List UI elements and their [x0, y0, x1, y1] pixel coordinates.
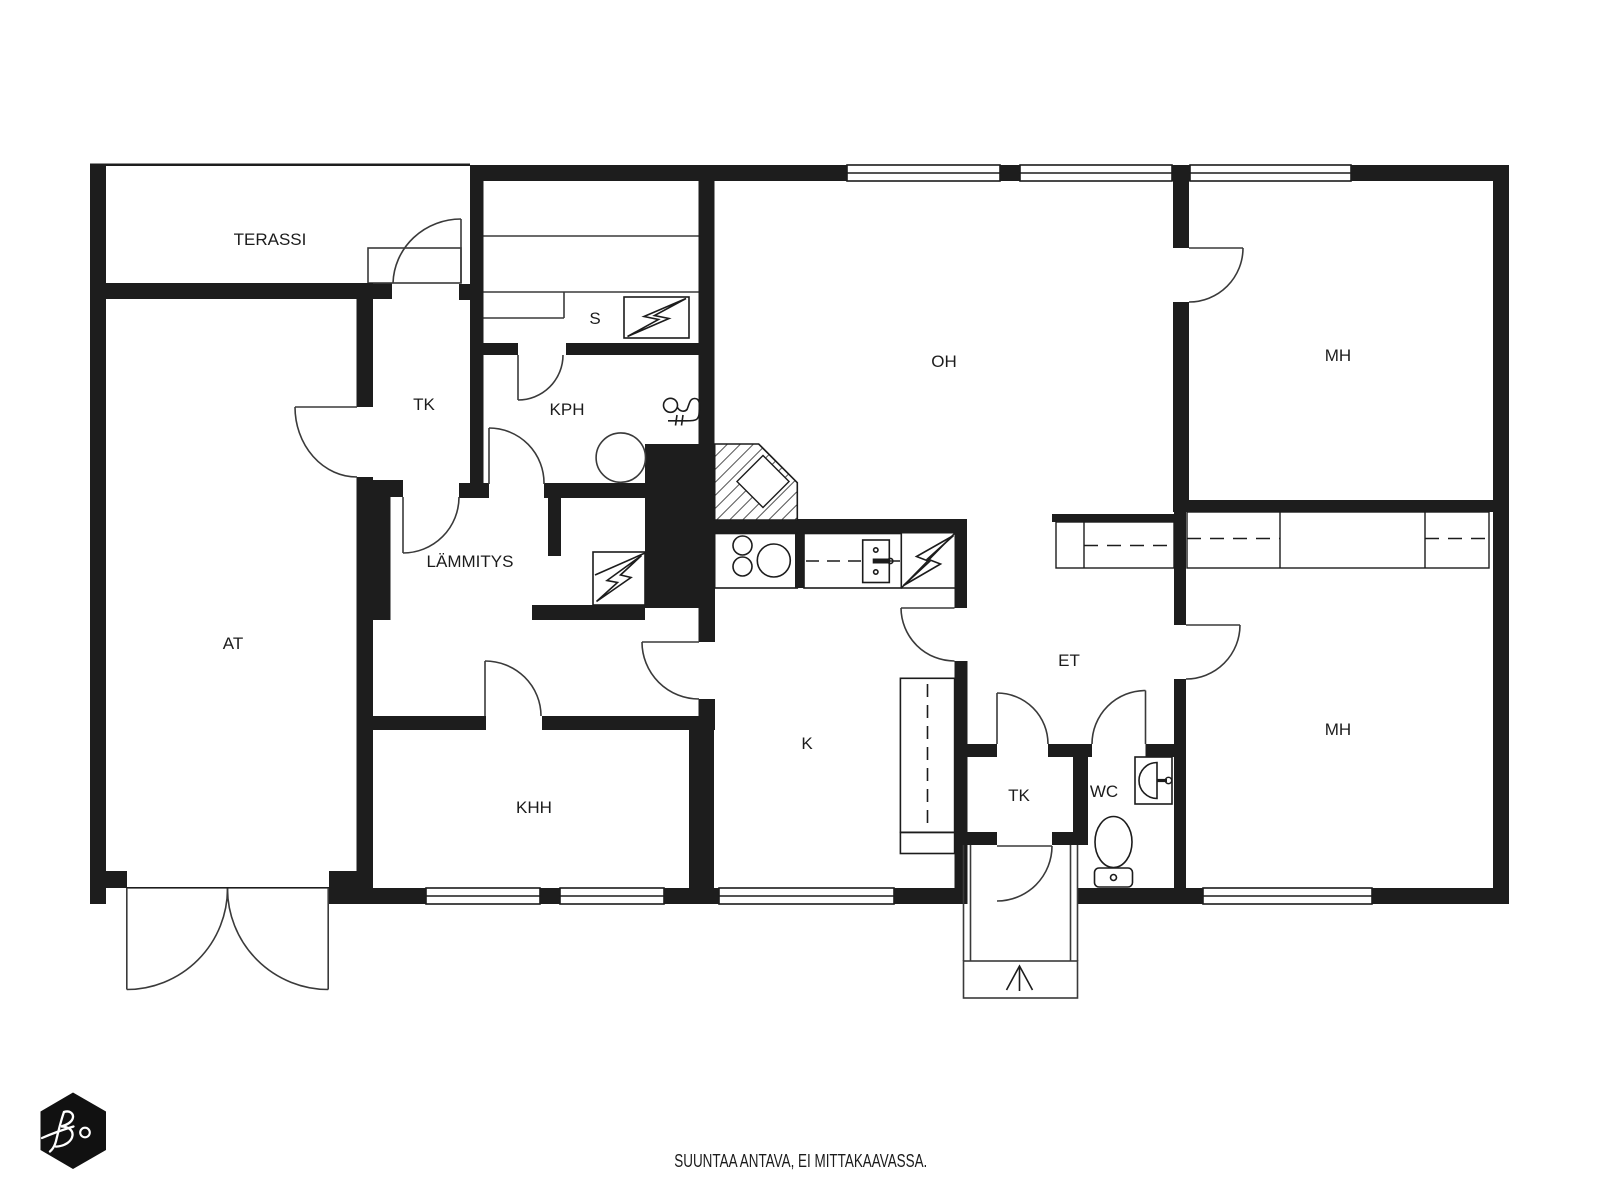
svg-text:ET: ET	[1058, 651, 1080, 670]
svg-text:WC: WC	[1090, 782, 1118, 801]
svg-text:TK: TK	[1008, 786, 1030, 805]
svg-text:MH: MH	[1325, 346, 1351, 365]
svg-text:SUUNTAA ANTAVA, EI MITTAKAAVAS: SUUNTAA ANTAVA, EI MITTAKAAVASSA.	[674, 1151, 927, 1171]
svg-text:KPH: KPH	[550, 400, 585, 419]
svg-text:AT: AT	[223, 634, 243, 653]
svg-text:OH: OH	[931, 352, 957, 371]
svg-text:TK: TK	[413, 395, 435, 414]
svg-text:MH: MH	[1325, 720, 1351, 739]
svg-text:S: S	[589, 309, 600, 328]
svg-text:LÄMMITYS: LÄMMITYS	[427, 552, 514, 571]
svg-text:KHH: KHH	[516, 798, 552, 817]
svg-text:K: K	[801, 734, 813, 753]
svg-text:TERASSI: TERASSI	[234, 230, 307, 249]
